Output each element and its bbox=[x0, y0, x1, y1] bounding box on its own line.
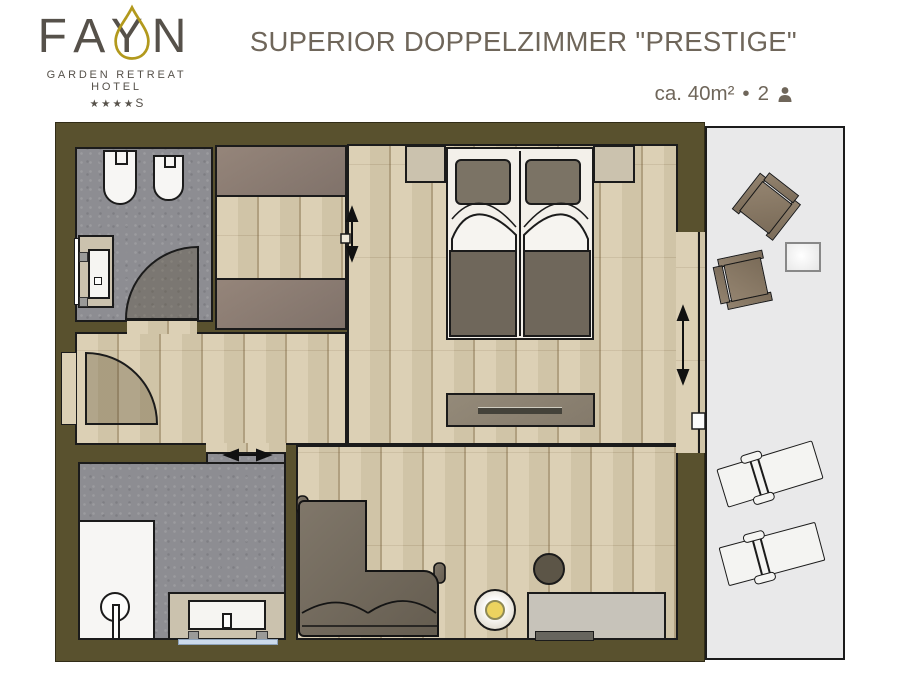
wardrobe-bottom bbox=[215, 278, 347, 330]
wc-handle-top bbox=[79, 252, 88, 262]
bidet bbox=[103, 150, 137, 205]
logo-stars: ★★★★S bbox=[24, 96, 209, 110]
corner-sofa bbox=[296, 495, 446, 642]
nightstand-right bbox=[593, 145, 635, 183]
stool bbox=[533, 553, 565, 585]
sideboard-slot bbox=[535, 631, 594, 641]
hotel-logo: FAYN GARDEN RETREAT HOTEL ★★★★S bbox=[24, 8, 209, 118]
shower-handle bbox=[112, 604, 120, 640]
bath-mat bbox=[178, 639, 278, 645]
sideboard bbox=[527, 592, 666, 640]
blanket-right bbox=[524, 251, 590, 336]
page-title: SUPERIOR DOPPELZIMMER "PRESTIGE" bbox=[250, 26, 797, 58]
wc-sink bbox=[88, 249, 110, 299]
candle-accent bbox=[485, 600, 505, 620]
round-side-table bbox=[474, 589, 516, 631]
duvet-right bbox=[524, 214, 588, 253]
capacity-label: 2 bbox=[758, 82, 769, 106]
bullet-separator: • bbox=[742, 82, 749, 106]
console-table bbox=[446, 393, 595, 427]
area-label: ca. 40m² bbox=[655, 82, 735, 106]
superior-suffix: S bbox=[135, 96, 143, 110]
pillow-right bbox=[526, 160, 580, 204]
bathroom-vanity bbox=[168, 592, 286, 640]
blanket-left bbox=[450, 251, 516, 336]
floor-plan bbox=[55, 122, 845, 662]
console-drawer-slot bbox=[478, 407, 562, 414]
floorplan-page: FAYN GARDEN RETREAT HOTEL ★★★★S SUPERIOR… bbox=[0, 0, 900, 675]
balcony-table bbox=[785, 242, 821, 272]
duvet-left bbox=[452, 214, 516, 253]
wc-tap bbox=[94, 277, 102, 285]
toilet bbox=[153, 155, 184, 201]
leaf-icon bbox=[112, 4, 152, 62]
double-bed bbox=[446, 147, 594, 340]
wc-vanity bbox=[78, 235, 114, 308]
entrance-door-opening bbox=[61, 352, 77, 425]
person-icon bbox=[777, 86, 793, 103]
shower bbox=[78, 520, 155, 640]
wc-handle-bottom bbox=[79, 297, 88, 307]
toilet-flush bbox=[164, 155, 176, 168]
bed-linen bbox=[448, 149, 592, 338]
entry-hall-floor bbox=[75, 332, 347, 445]
bidet-tap bbox=[115, 150, 128, 165]
logo-tagline: GARDEN RETREAT HOTEL bbox=[24, 69, 209, 93]
wardrobe-top bbox=[215, 145, 347, 197]
pillow-left bbox=[456, 160, 510, 204]
logo-wordmark: FAYN bbox=[24, 8, 209, 66]
wc-door-opening bbox=[127, 321, 197, 334]
bathroom-tap bbox=[222, 613, 232, 629]
room-specs: ca. 40m² • 2 bbox=[655, 82, 793, 106]
balcony-door-floor bbox=[676, 232, 705, 453]
nightstand-left bbox=[405, 145, 446, 183]
star-icons: ★★★★ bbox=[90, 98, 136, 110]
